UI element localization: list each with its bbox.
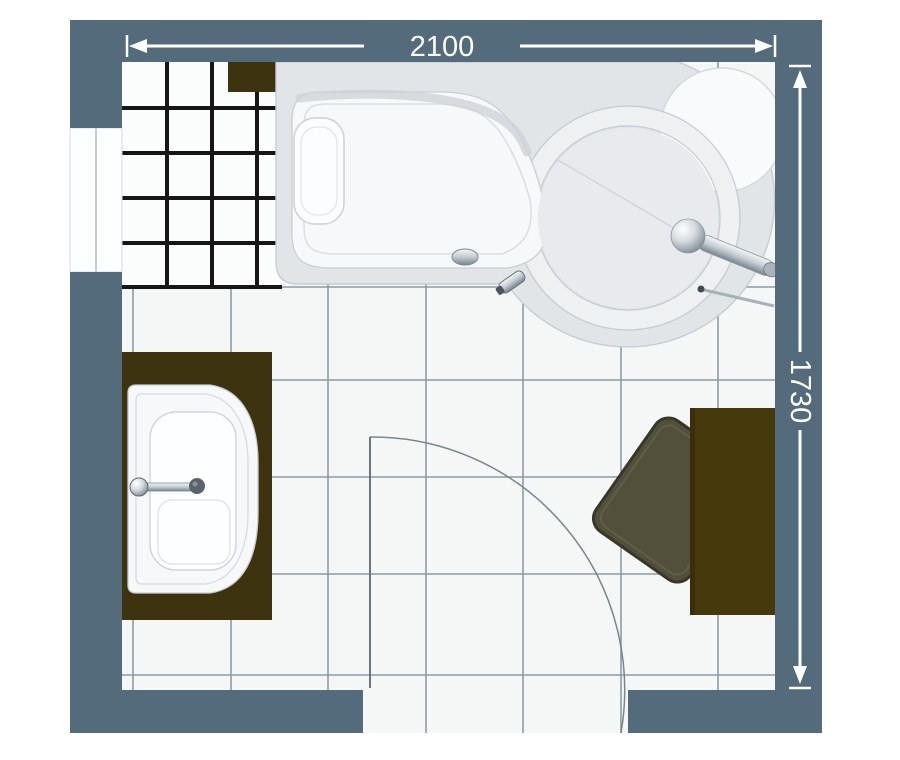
washbasin-unit xyxy=(122,352,272,620)
window-recess xyxy=(70,128,122,272)
shower-floor xyxy=(538,128,718,308)
bathroom-floorplan: 2100 1730 xyxy=(0,0,900,760)
cabinet-shadow-edge xyxy=(690,408,695,615)
wall-left-upper xyxy=(70,20,122,128)
waste-knob xyxy=(452,249,478,265)
side-cabinet xyxy=(690,408,776,615)
wall-left-lower xyxy=(70,272,122,733)
bath-headrest xyxy=(294,118,344,224)
splash-tile-area xyxy=(122,62,282,289)
wall-bottom-right xyxy=(628,690,822,733)
dimension-width-label: 2100 xyxy=(410,31,475,63)
wall-bottom-left xyxy=(70,690,363,733)
dimension-height-label: 1730 xyxy=(784,359,816,424)
floorplan-canvas: 2100 1730 xyxy=(0,0,900,760)
